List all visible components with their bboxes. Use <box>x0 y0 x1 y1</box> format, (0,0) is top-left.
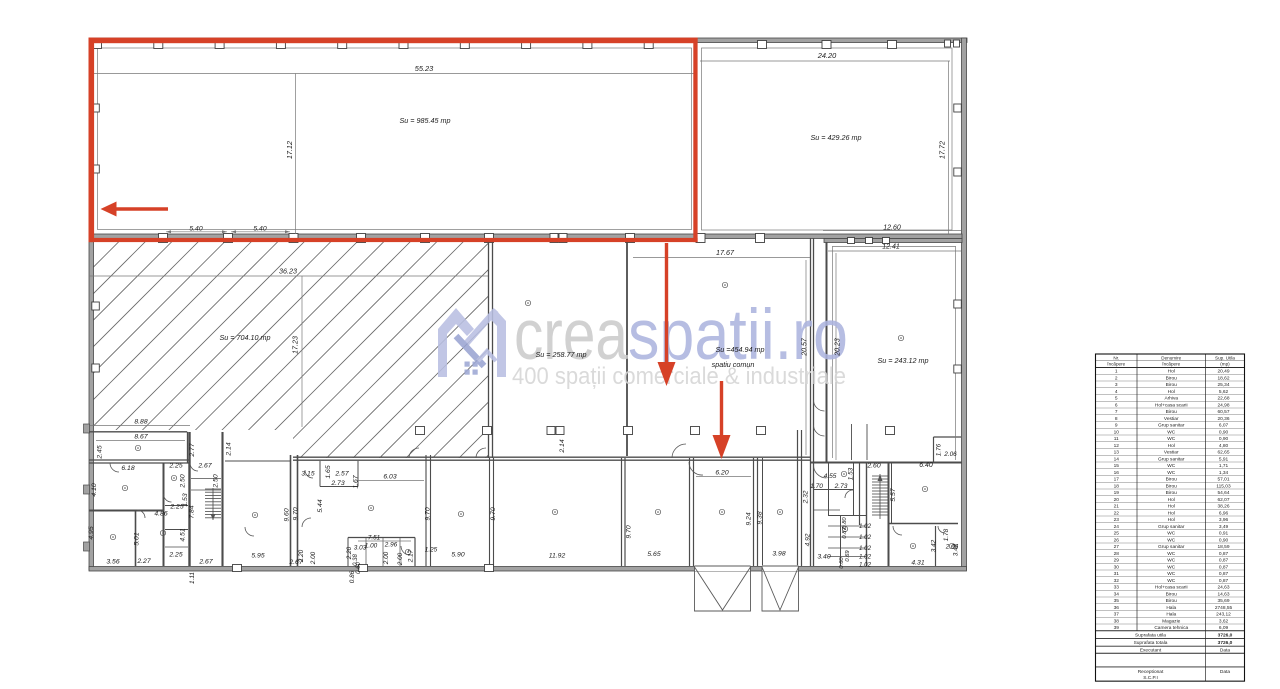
svg-text:12.60: 12.60 <box>883 225 901 232</box>
svg-text:2.00: 2.00 <box>310 551 317 565</box>
svg-text:2.50: 2.50 <box>180 474 187 488</box>
svg-text:2.27: 2.27 <box>136 558 150 565</box>
svg-text:6: 6 <box>1115 402 1118 408</box>
svg-text:38: 38 <box>1114 618 1120 624</box>
svg-text:2.96: 2.96 <box>384 542 398 549</box>
svg-text:Denumire: Denumire <box>1161 355 1181 360</box>
svg-text:WC: WC <box>1167 578 1176 584</box>
svg-text:55.23: 55.23 <box>415 64 434 73</box>
svg-text:12.41: 12.41 <box>882 244 900 251</box>
svg-text:5.90: 5.90 <box>451 552 464 559</box>
svg-text:25: 25 <box>1114 531 1120 537</box>
svg-text:22,68: 22,68 <box>1217 396 1229 402</box>
svg-text:1.11: 1.11 <box>189 572 196 584</box>
svg-text:4.51: 4.51 <box>180 528 187 541</box>
svg-text:Vestiar: Vestiar <box>1164 416 1179 422</box>
svg-text:WC: WC <box>1167 531 1176 537</box>
svg-text:9.70: 9.70 <box>626 525 633 538</box>
svg-text:30: 30 <box>1114 564 1120 570</box>
svg-text:115,03: 115,03 <box>1216 483 1231 489</box>
svg-text:11.92: 11.92 <box>549 553 566 560</box>
svg-text:6.18: 6.18 <box>121 465 134 472</box>
svg-text:8.88: 8.88 <box>134 419 147 426</box>
svg-text:2748,55: 2748,55 <box>1215 605 1233 611</box>
svg-text:17.12: 17.12 <box>285 141 294 159</box>
svg-text:2.32: 2.32 <box>803 490 810 504</box>
svg-text:37: 37 <box>1114 612 1120 618</box>
svg-text:20: 20 <box>1114 497 1120 503</box>
svg-text:Su = 258.77 mp: Su = 258.77 mp <box>536 350 587 359</box>
svg-text:WC: WC <box>1167 551 1176 557</box>
svg-text:0,91: 0,91 <box>1219 531 1229 537</box>
svg-text:Grup sanitar: Grup sanitar <box>1158 423 1185 429</box>
svg-text:3,49: 3,49 <box>1219 524 1229 530</box>
svg-text:20.23: 20.23 <box>835 338 842 357</box>
svg-text:11: 11 <box>1114 436 1119 442</box>
svg-text:2.14: 2.14 <box>226 442 233 456</box>
svg-text:3.56: 3.56 <box>106 559 119 566</box>
svg-text:Magazie: Magazie <box>1162 618 1180 624</box>
svg-text:4.10: 4.10 <box>91 483 98 496</box>
svg-text:5,62: 5,62 <box>1219 389 1229 395</box>
svg-text:Hol: Hol <box>1168 389 1175 395</box>
svg-text:2.20: 2.20 <box>298 549 305 563</box>
svg-text:9.70: 9.70 <box>293 507 300 520</box>
svg-text:15: 15 <box>1114 463 1120 469</box>
svg-text:2.20: 2.20 <box>346 546 353 560</box>
svg-text:1: 1 <box>1115 369 1118 375</box>
svg-text:9.38: 9.38 <box>757 511 764 524</box>
svg-text:2.00: 2.00 <box>397 552 404 566</box>
svg-text:4,80: 4,80 <box>1219 443 1229 449</box>
svg-text:2.25: 2.25 <box>168 552 182 559</box>
svg-text:5,91: 5,91 <box>1219 456 1229 462</box>
svg-text:1.78: 1.78 <box>943 528 950 541</box>
svg-text:WC: WC <box>1167 436 1176 442</box>
svg-text:2.25: 2.25 <box>168 463 182 470</box>
svg-text:Hol: Hol <box>1168 517 1175 523</box>
svg-text:Birou: Birou <box>1166 490 1178 496</box>
svg-text:Birou: Birou <box>1166 477 1178 483</box>
svg-text:18,62: 18,62 <box>1217 375 1229 381</box>
svg-text:6.40: 6.40 <box>919 462 933 469</box>
svg-text:Su =454.94 mp: Su =454.94 mp <box>716 345 765 354</box>
svg-text:WC: WC <box>1167 470 1176 476</box>
svg-text:9.24: 9.24 <box>746 512 753 525</box>
svg-text:35,69: 35,69 <box>1217 598 1229 604</box>
svg-text:14,63: 14,63 <box>1217 591 1229 597</box>
svg-text:2.25: 2.25 <box>169 504 183 511</box>
svg-text:Data: Data <box>1220 648 1230 654</box>
svg-text:Sup. Utila: Sup. Utila <box>1215 355 1235 360</box>
svg-text:0,87: 0,87 <box>1219 578 1229 584</box>
svg-text:0,90: 0,90 <box>1219 429 1229 435</box>
svg-text:243,12: 243,12 <box>1216 612 1231 618</box>
svg-text:0,87: 0,87 <box>1219 564 1229 570</box>
svg-text:6,96: 6,96 <box>1219 510 1229 516</box>
svg-text:3.40: 3.40 <box>817 554 830 561</box>
svg-text:17.72: 17.72 <box>938 141 947 159</box>
svg-text:17.67: 17.67 <box>716 248 735 257</box>
svg-text:6,09: 6,09 <box>1219 625 1229 631</box>
svg-text:3.42: 3.42 <box>931 539 938 552</box>
svg-text:Su = 429.26 mp: Su = 429.26 mp <box>811 133 862 142</box>
svg-text:1.02: 1.02 <box>859 523 872 530</box>
svg-text:6.20: 6.20 <box>715 470 728 477</box>
svg-text:Arhiva: Arhiva <box>1164 396 1178 402</box>
svg-text:31: 31 <box>1114 571 1120 577</box>
svg-text:1.70: 1.70 <box>810 483 823 490</box>
svg-text:1.65: 1.65 <box>325 465 332 478</box>
svg-text:20.57: 20.57 <box>802 337 809 357</box>
svg-text:2.14: 2.14 <box>559 439 566 453</box>
svg-text:0.69: 0.69 <box>845 550 851 562</box>
svg-text:8.67: 8.67 <box>134 434 147 441</box>
svg-text:57,01: 57,01 <box>1217 477 1229 483</box>
svg-text:17: 17 <box>1114 477 1120 483</box>
svg-text:0,87: 0,87 <box>1219 551 1229 557</box>
svg-text:Hol: Hol <box>1168 369 1175 375</box>
svg-text:Grup sanitar: Grup sanitar <box>1158 524 1185 530</box>
svg-text:18,59: 18,59 <box>1217 544 1229 550</box>
svg-text:62,07: 62,07 <box>1217 497 1229 503</box>
svg-text:4.55: 4.55 <box>824 473 837 480</box>
svg-text:1.02: 1.02 <box>859 534 872 541</box>
svg-text:5.44: 5.44 <box>317 499 324 512</box>
svg-text:0,90: 0,90 <box>1219 436 1229 442</box>
svg-text:62,65: 62,65 <box>1217 450 1229 456</box>
svg-text:WC: WC <box>1167 463 1176 469</box>
svg-text:16: 16 <box>1114 470 1120 476</box>
svg-text:Birou: Birou <box>1166 483 1178 489</box>
svg-text:21: 21 <box>1114 504 1120 510</box>
svg-text:24,63: 24,63 <box>1217 585 1229 591</box>
svg-text:3: 3 <box>1115 382 1118 388</box>
svg-text:1.53: 1.53 <box>848 467 855 480</box>
svg-text:Hol: Hol <box>1168 510 1175 516</box>
svg-text:S.C.P.I: S.C.P.I <box>1143 675 1158 681</box>
svg-text:10: 10 <box>1114 429 1120 435</box>
svg-text:9.70: 9.70 <box>490 507 497 520</box>
svg-text:Suprafata utila: Suprafata utila <box>1135 632 1166 638</box>
svg-text:3,62: 3,62 <box>1219 618 1229 624</box>
svg-text:2.67: 2.67 <box>197 463 211 470</box>
svg-text:4: 4 <box>1115 389 1118 395</box>
svg-text:0.87: 0.87 <box>842 527 848 539</box>
svg-text:2.73: 2.73 <box>834 483 848 490</box>
svg-text:WC: WC <box>1167 429 1176 435</box>
svg-text:28: 28 <box>1114 551 1120 557</box>
svg-text:5.40: 5.40 <box>253 225 266 232</box>
svg-text:WC: WC <box>1167 558 1176 564</box>
svg-text:20,36: 20,36 <box>1217 416 1229 422</box>
svg-text:34: 34 <box>1114 591 1120 597</box>
svg-text:7.84: 7.84 <box>189 505 196 518</box>
svg-text:19: 19 <box>1114 490 1120 496</box>
svg-text:2.17: 2.17 <box>408 549 415 563</box>
svg-text:Hala: Hala <box>1166 605 1176 611</box>
svg-text:Receptionat: Receptionat <box>1138 669 1164 675</box>
svg-text:2.45: 2.45 <box>97 445 104 459</box>
svg-text:24.20: 24.20 <box>817 51 837 60</box>
svg-text:4.86: 4.86 <box>154 511 167 518</box>
svg-text:1,71: 1,71 <box>1219 463 1229 469</box>
svg-text:spatiu comun: spatiu comun <box>712 360 755 369</box>
svg-text:Birou: Birou <box>1166 598 1178 604</box>
svg-text:22: 22 <box>1114 510 1120 516</box>
svg-text:2: 2 <box>1115 375 1118 381</box>
svg-text:2.73: 2.73 <box>330 480 344 487</box>
svg-text:0.86: 0.86 <box>349 570 356 583</box>
svg-text:3726,0: 3726,0 <box>1218 632 1233 638</box>
svg-text:0.80: 0.80 <box>842 517 848 529</box>
svg-text:0,87: 0,87 <box>1219 558 1229 564</box>
svg-text:Hol: Hol <box>1168 443 1175 449</box>
svg-text:35: 35 <box>1114 598 1120 604</box>
svg-text:(mp): (mp) <box>1220 362 1230 367</box>
svg-text:0,90: 0,90 <box>1219 537 1229 543</box>
svg-text:36.23: 36.23 <box>279 267 297 276</box>
svg-text:39: 39 <box>1114 625 1120 631</box>
svg-text:Vestiar: Vestiar <box>1164 450 1179 456</box>
svg-text:18: 18 <box>1114 483 1120 489</box>
svg-text:2.50: 2.50 <box>213 474 220 488</box>
svg-text:WC: WC <box>1167 571 1176 577</box>
svg-text:încăpere: încăpere <box>1161 362 1180 367</box>
svg-text:încăpere: încăpere <box>1106 362 1125 367</box>
svg-text:60,57: 60,57 <box>1217 409 1229 415</box>
svg-text:5.57: 5.57 <box>890 488 897 501</box>
svg-text:Hol+casa scarii: Hol+casa scarii <box>1155 585 1188 591</box>
svg-text:5.65: 5.65 <box>647 551 660 558</box>
svg-text:9.70: 9.70 <box>425 507 432 520</box>
svg-text:7.51: 7.51 <box>368 535 381 542</box>
svg-text:2.06: 2.06 <box>945 544 959 551</box>
svg-text:54,64: 54,64 <box>1217 490 1229 496</box>
svg-text:24,98: 24,98 <box>1217 402 1229 408</box>
svg-text:5: 5 <box>1115 396 1118 402</box>
svg-text:29: 29 <box>1114 558 1120 564</box>
svg-text:2.67: 2.67 <box>198 559 212 566</box>
svg-text:Birou: Birou <box>1166 409 1178 415</box>
svg-text:6,07: 6,07 <box>1219 423 1229 429</box>
svg-text:Suprafata totala: Suprafata totala <box>1134 640 1168 646</box>
svg-text:2.60: 2.60 <box>866 463 880 470</box>
svg-text:9: 9 <box>1115 423 1118 429</box>
svg-text:Su = 704.10 mp: Su = 704.10 mp <box>220 333 271 342</box>
svg-text:5.01: 5.01 <box>134 532 141 545</box>
svg-text:1,34: 1,34 <box>1219 470 1229 476</box>
svg-text:WC: WC <box>1167 537 1176 543</box>
svg-text:5.95: 5.95 <box>251 553 264 560</box>
svg-text:Birou: Birou <box>1166 375 1178 381</box>
svg-text:20,49: 20,49 <box>1217 369 1229 375</box>
svg-text:1.67: 1.67 <box>353 475 360 488</box>
svg-text:32: 32 <box>1114 578 1120 584</box>
svg-text:Birou: Birou <box>1166 591 1178 597</box>
svg-text:4.31: 4.31 <box>911 560 924 567</box>
svg-text:9.60: 9.60 <box>284 508 291 521</box>
svg-text:4.92: 4.92 <box>805 533 812 546</box>
svg-text:25,34: 25,34 <box>1217 382 1229 388</box>
svg-text:Executant: Executant <box>1140 648 1162 654</box>
svg-text:2.00: 2.00 <box>383 551 390 565</box>
svg-text:Grup sanitar: Grup sanitar <box>1158 544 1185 550</box>
svg-text:3.98: 3.98 <box>772 551 785 558</box>
svg-text:1.02: 1.02 <box>859 562 872 569</box>
svg-text:Nr.: Nr. <box>1113 355 1119 360</box>
svg-text:4.95: 4.95 <box>88 526 95 539</box>
svg-text:Data: Data <box>1220 669 1230 675</box>
svg-text:2.57: 2.57 <box>334 471 348 478</box>
svg-text:17.23: 17.23 <box>291 336 300 354</box>
svg-text:2.06: 2.06 <box>943 451 957 458</box>
svg-text:5.40: 5.40 <box>189 225 202 232</box>
svg-text:400 spații comerciale & indust: 400 spații comerciale & industriale <box>512 363 846 390</box>
svg-text:36: 36 <box>1114 605 1120 611</box>
svg-text:Camera tehnica: Camera tehnica <box>1154 625 1188 631</box>
svg-text:Hol: Hol <box>1168 504 1175 510</box>
svg-text:1.02: 1.02 <box>859 554 872 561</box>
svg-text:Hala: Hala <box>1166 612 1176 618</box>
svg-text:Su = 243.12 mp: Su = 243.12 mp <box>878 356 929 365</box>
svg-text:3,96: 3,96 <box>1219 517 1229 523</box>
svg-text:Birou: Birou <box>1166 382 1178 388</box>
svg-text:1.25: 1.25 <box>425 547 438 554</box>
svg-text:Su = 985.45 mp: Su = 985.45 mp <box>400 116 451 125</box>
svg-text:23: 23 <box>1114 517 1120 523</box>
svg-text:38,26: 38,26 <box>1217 504 1229 510</box>
svg-text:Grup sanitar: Grup sanitar <box>1158 456 1185 462</box>
svg-text:2.77: 2.77 <box>189 443 196 457</box>
svg-text:1.00: 1.00 <box>365 543 378 550</box>
svg-text:14: 14 <box>1114 456 1120 462</box>
svg-text:6.03: 6.03 <box>383 474 396 481</box>
svg-text:3726,0: 3726,0 <box>1218 640 1233 646</box>
svg-text:WC: WC <box>1167 564 1176 570</box>
svg-text:8: 8 <box>1115 416 1118 422</box>
svg-text:3.15: 3.15 <box>301 471 314 478</box>
svg-text:0,87: 0,87 <box>1219 571 1229 577</box>
svg-text:Hol: Hol <box>1168 497 1175 503</box>
svg-text:26: 26 <box>1114 537 1120 543</box>
svg-text:0.38: 0.38 <box>353 554 359 566</box>
svg-text:27: 27 <box>1114 544 1120 550</box>
svg-text:24: 24 <box>1114 524 1120 530</box>
svg-text:Hol+casa scarii: Hol+casa scarii <box>1155 402 1188 408</box>
svg-text:33: 33 <box>1114 585 1120 591</box>
svg-text:7: 7 <box>1115 409 1118 415</box>
svg-text:1.02: 1.02 <box>859 545 872 552</box>
svg-text:1.76: 1.76 <box>936 443 943 456</box>
svg-text:12: 12 <box>1114 443 1120 449</box>
svg-text:13: 13 <box>1114 450 1120 456</box>
